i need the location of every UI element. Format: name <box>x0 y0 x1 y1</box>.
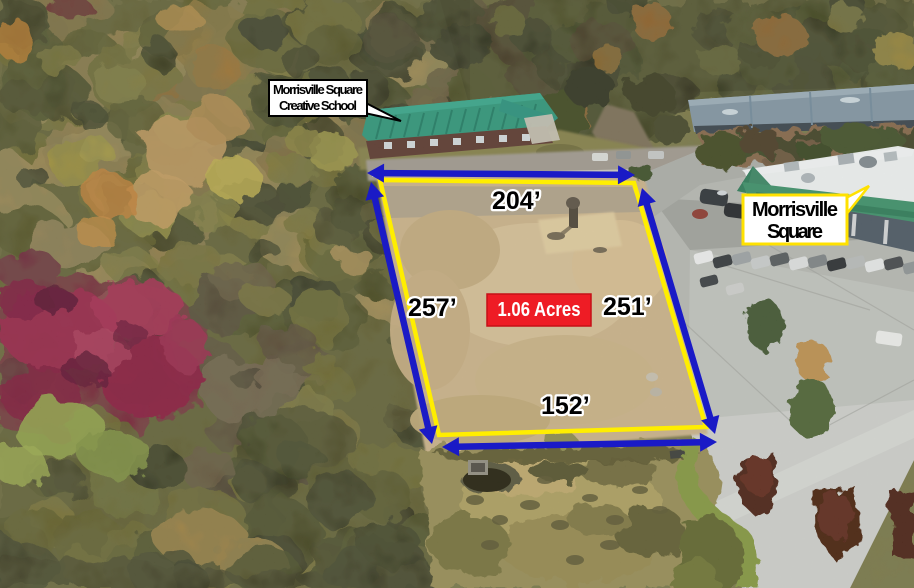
svg-text:152’: 152’ <box>541 392 590 420</box>
svg-text:Creative School: Creative School <box>279 98 357 113</box>
svg-text:251’: 251’ <box>603 293 652 321</box>
svg-text:Morrisville Square: Morrisville Square <box>273 82 363 97</box>
svg-text:Morrisville: Morrisville <box>752 199 838 221</box>
svg-text:Square: Square <box>767 221 823 243</box>
svg-text:257’: 257’ <box>408 294 457 322</box>
svg-text:204’: 204’ <box>492 187 541 215</box>
svg-text:1.06 Acres: 1.06 Acres <box>498 299 581 321</box>
